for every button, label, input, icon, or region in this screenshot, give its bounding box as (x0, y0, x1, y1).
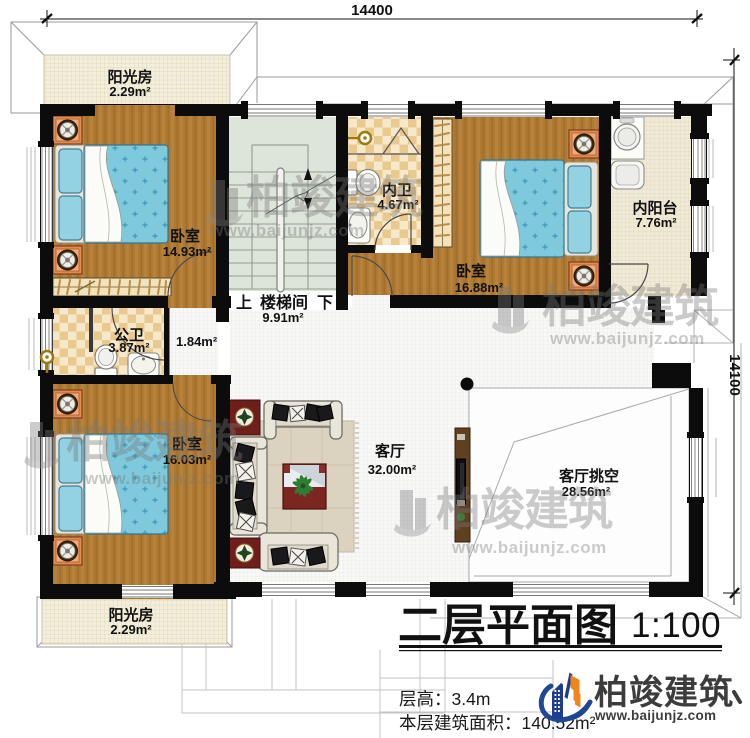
svg-text:9.91m²: 9.91m² (262, 310, 304, 325)
svg-text:柏竣建筑: 柏竣建筑 (246, 172, 423, 223)
svg-text:柏竣建筑: 柏竣建筑 (436, 484, 613, 535)
svg-text:2.29m²: 2.29m² (110, 622, 152, 637)
svg-text:本层建筑面积：140.52m²: 本层建筑面积：140.52m² (399, 713, 596, 733)
svg-text:1.84m²: 1.84m² (176, 334, 218, 349)
svg-text:层高：3.4m: 层高：3.4m (399, 689, 490, 709)
svg-text:7.76m²: 7.76m² (635, 215, 677, 230)
svg-text:14400: 14400 (351, 2, 393, 19)
svg-text:2.29m²: 2.29m² (109, 84, 151, 99)
svg-text:32.00m²: 32.00m² (368, 462, 417, 477)
svg-text:www.baijunjz.com: www.baijunjz.com (84, 469, 240, 488)
svg-text:www.baijunjz.com: www.baijunjz.com (451, 538, 607, 557)
svg-text:卧室: 卧室 (456, 262, 486, 280)
svg-text:1:100: 1:100 (631, 606, 721, 645)
svg-text:14100: 14100 (726, 354, 743, 396)
svg-text:二层平面图: 二层平面图 (398, 601, 618, 650)
svg-text:14.93m²: 14.93m² (163, 244, 212, 259)
svg-text:16.88m²: 16.88m² (455, 280, 504, 295)
svg-text:3.87m²: 3.87m² (108, 340, 150, 355)
svg-text:卧室: 卧室 (170, 227, 200, 245)
svg-text:www.baijunjz.com: www.baijunjz.com (209, 221, 365, 240)
svg-text:柏竣建筑: 柏竣建筑 (594, 673, 734, 712)
svg-text:上: 上 (236, 294, 252, 312)
svg-text:www.baijunjz.com: www.baijunjz.com (549, 329, 705, 348)
svg-text:客厅: 客厅 (374, 442, 405, 460)
svg-text:柏竣建筑: 柏竣建筑 (66, 416, 243, 467)
svg-text:下: 下 (317, 295, 333, 312)
svg-text:柏竣建筑: 柏竣建筑 (542, 281, 719, 332)
svg-text:客厅挑空: 客厅挑空 (558, 467, 619, 485)
svg-text:www.baijunjz.com: www.baijunjz.com (594, 708, 716, 723)
